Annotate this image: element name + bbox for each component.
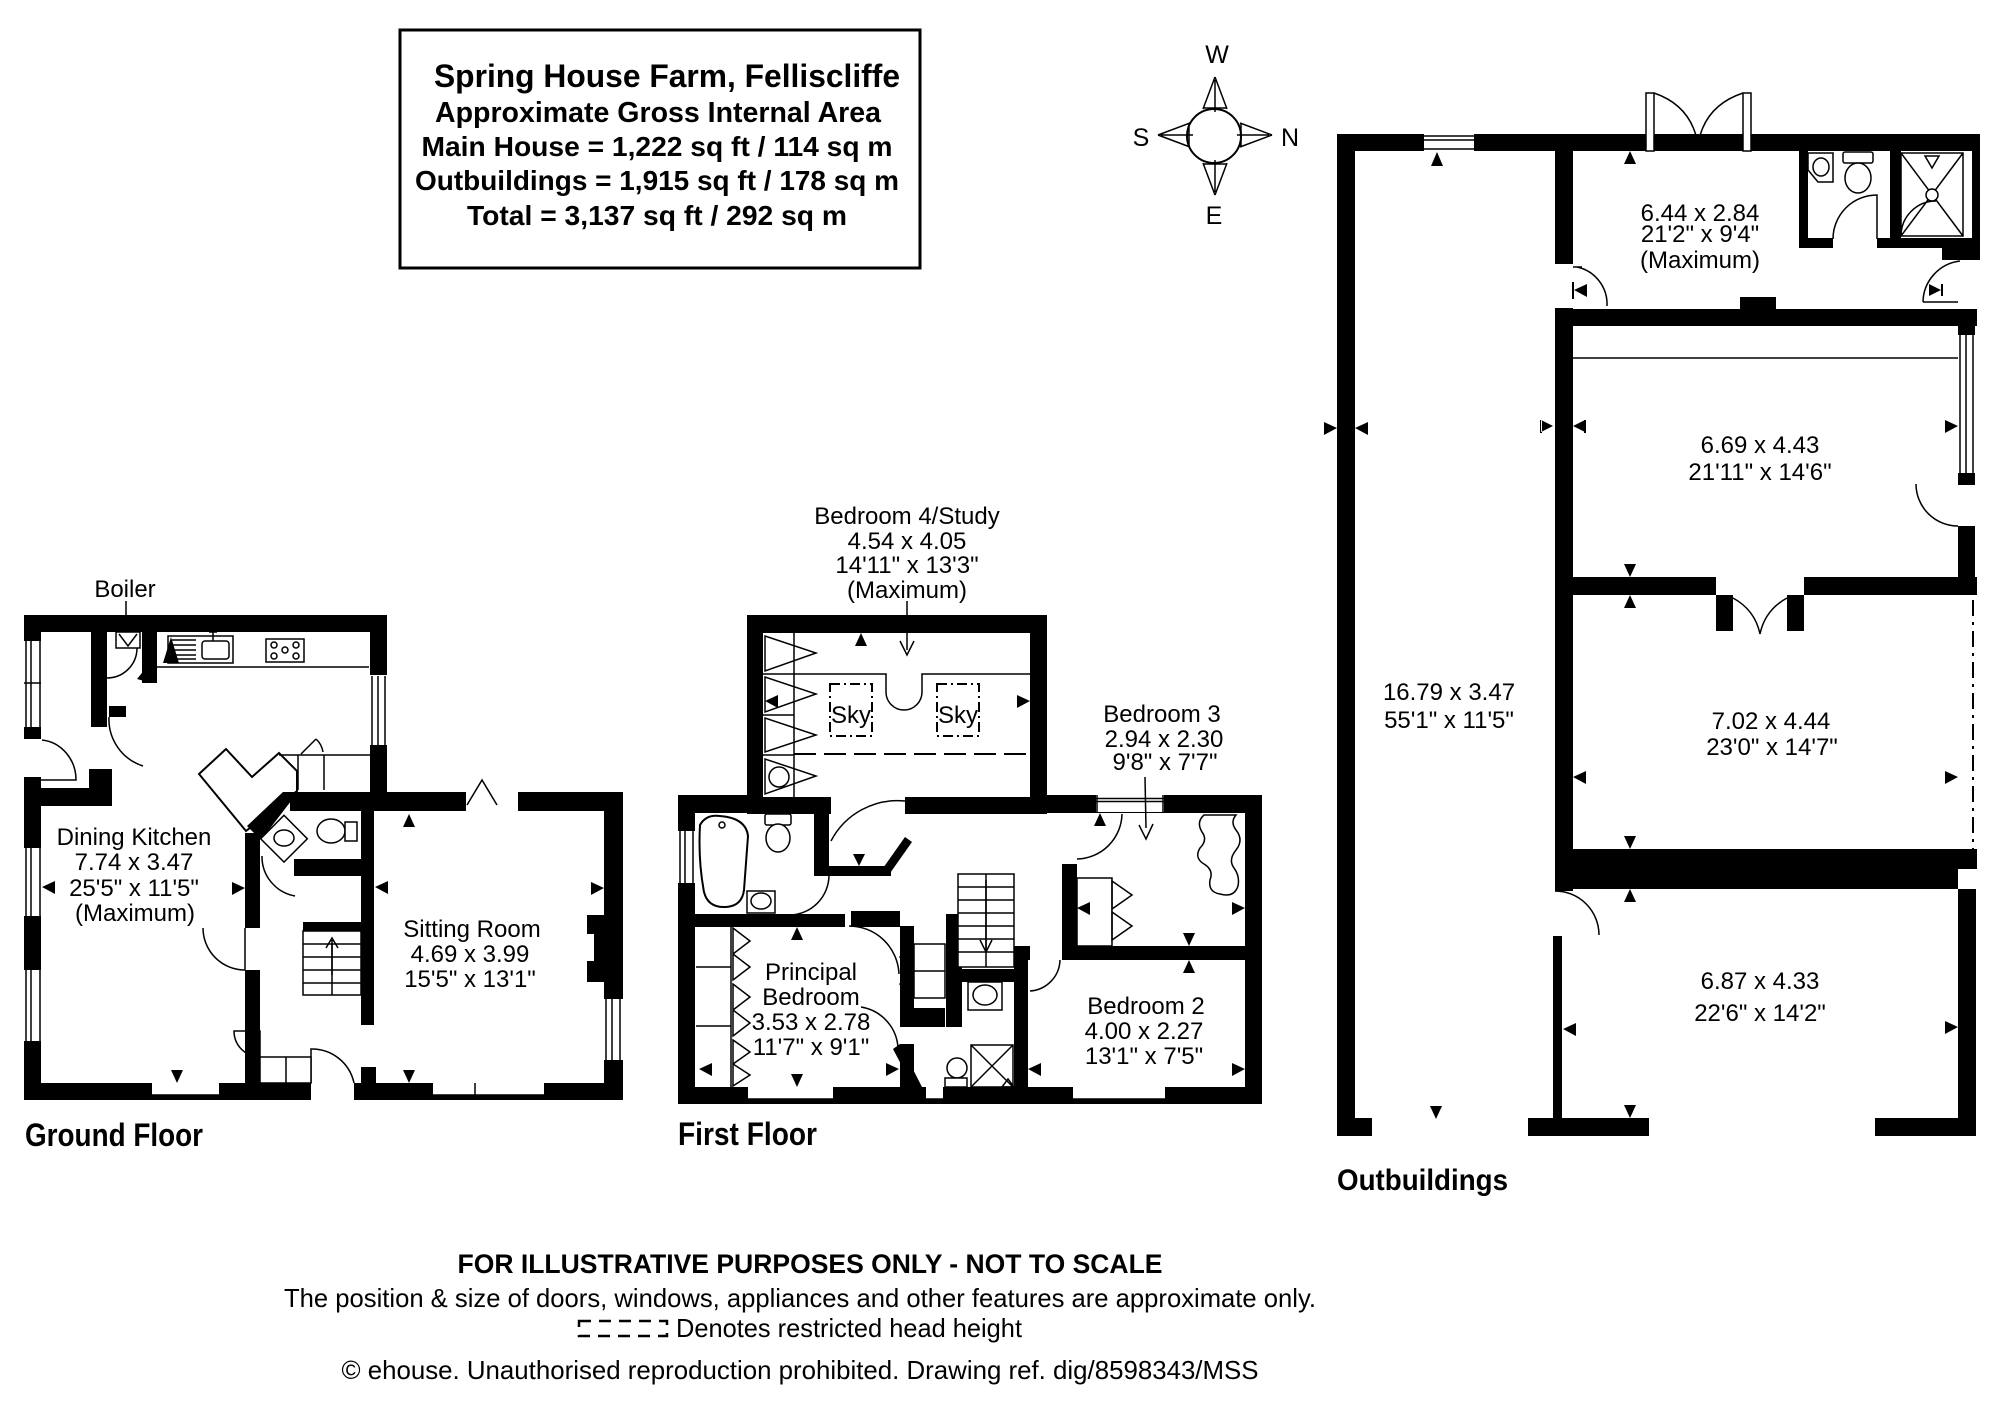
svg-text:23'0" x 14'7": 23'0" x 14'7" (1706, 734, 1838, 761)
svg-text:15'5" x 13'1": 15'5" x 13'1" (404, 966, 536, 993)
svg-text:Outbuildings: Outbuildings (1337, 1164, 1508, 1197)
svg-text:7.02 x 4.44: 7.02 x 4.44 (1712, 708, 1831, 735)
svg-text:4.69 x 3.99: 4.69 x 3.99 (411, 941, 530, 968)
svg-text:© ehouse. Unauthorised reprodu: © ehouse. Unauthorised reproduction proh… (342, 1357, 1259, 1385)
svg-text:16.79 x 3.47: 16.79 x 3.47 (1383, 679, 1515, 706)
svg-text:The position & size of doors,: The position & size of doors, windows, a… (284, 1285, 1316, 1313)
svg-text:(Maximum): (Maximum) (847, 577, 967, 604)
svg-text:Approximate Gross Internal Are: Approximate Gross Internal Area (435, 97, 882, 129)
svg-text:25'5" x 11'5": 25'5" x 11'5" (69, 875, 199, 902)
svg-text:Outbuildings = 1,915 sq ft / 1: Outbuildings = 1,915 sq ft / 178 sq m (415, 165, 899, 196)
svg-text:6.87 x 4.33: 6.87 x 4.33 (1701, 968, 1820, 995)
svg-text:9'8" x 7'7": 9'8" x 7'7" (1113, 749, 1218, 776)
svg-text:Total = 3,137 sq ft / 292 sq m: Total = 3,137 sq ft / 292 sq m (467, 199, 847, 231)
svg-text:55'1" x 11'5": 55'1" x 11'5" (1384, 707, 1514, 734)
svg-text:13'1" x 7'5": 13'1" x 7'5" (1085, 1043, 1203, 1070)
svg-text:Denotes restricted head height: Denotes restricted head height (676, 1315, 1022, 1343)
svg-text:FOR ILLUSTRATIVE PURPOSES ONLY: FOR ILLUSTRATIVE PURPOSES ONLY - NOT TO … (458, 1249, 1163, 1279)
svg-text:E: E (1206, 202, 1223, 230)
svg-text:Ground Floor: Ground Floor (25, 1117, 203, 1153)
svg-text:Dining Kitchen: Dining Kitchen (57, 824, 212, 851)
svg-text:22'6" x 14'2": 22'6" x 14'2" (1694, 1000, 1826, 1027)
svg-text:Spring House Farm, Felliscliff: Spring House Farm, Felliscliffe (434, 58, 900, 94)
svg-text:First Floor: First Floor (678, 1116, 817, 1152)
svg-text:Sky: Sky (831, 702, 871, 729)
svg-text:Main House = 1,222 sq ft / 114: Main House = 1,222 sq ft / 114 sq m (422, 130, 893, 162)
svg-text:21'11" x 14'6": 21'11" x 14'6" (1688, 459, 1831, 486)
svg-text:21'2" x 9'4": 21'2" x 9'4" (1641, 221, 1759, 248)
svg-text:14'11" x 13'3": 14'11" x 13'3" (835, 552, 978, 579)
svg-text:Bedroom 4/Study: Bedroom 4/Study (814, 503, 999, 530)
svg-text:Bedroom: Bedroom (762, 984, 859, 1011)
svg-text:S: S (1133, 124, 1150, 152)
svg-text:Principal: Principal (765, 959, 857, 986)
svg-text:4.00 x 2.27: 4.00 x 2.27 (1085, 1018, 1204, 1045)
svg-text:Sky: Sky (938, 702, 978, 729)
svg-text:N: N (1281, 124, 1299, 152)
svg-text:(Maximum): (Maximum) (75, 900, 195, 927)
svg-text:Boiler: Boiler (94, 576, 155, 603)
svg-text:Bedroom 3: Bedroom 3 (1103, 701, 1220, 728)
svg-text:11'7" x 9'1": 11'7" x 9'1" (753, 1034, 870, 1061)
svg-text:3.53 x 2.78: 3.53 x 2.78 (752, 1009, 871, 1036)
svg-text:W: W (1205, 41, 1229, 69)
svg-text:Bedroom 2: Bedroom 2 (1087, 993, 1204, 1020)
svg-text:6.69 x 4.43: 6.69 x 4.43 (1701, 432, 1820, 459)
svg-text:7.74 x 3.47: 7.74 x 3.47 (75, 849, 194, 876)
svg-text:4.54 x 4.05: 4.54 x 4.05 (848, 528, 967, 555)
svg-text:(Maximum): (Maximum) (1640, 247, 1760, 274)
svg-text:Sitting Room: Sitting Room (403, 916, 540, 943)
